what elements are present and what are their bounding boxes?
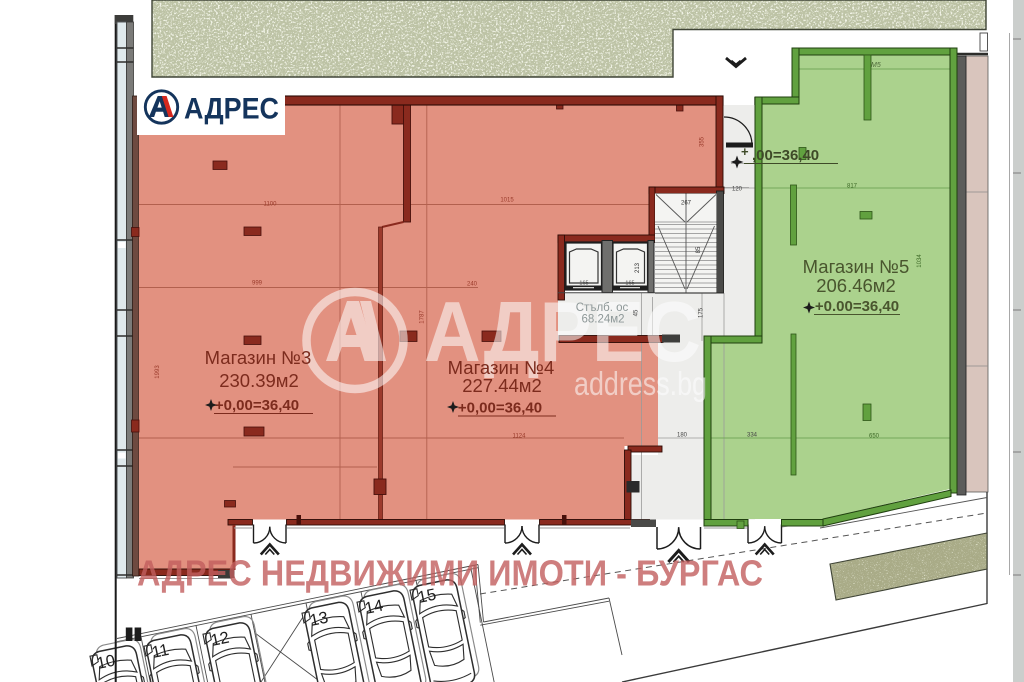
svg-text:355: 355 — [700, 136, 706, 147]
svg-text:206.46м2: 206.46м2 — [816, 275, 896, 296]
svg-text:267: 267 — [681, 201, 692, 207]
svg-text:68.24м2: 68.24м2 — [581, 314, 624, 326]
svg-text:1015: 1015 — [500, 198, 514, 204]
svg-text:334: 334 — [747, 433, 758, 439]
svg-text:85: 85 — [696, 246, 702, 253]
svg-text:999: 999 — [252, 281, 263, 287]
svg-text:13: 13 — [308, 609, 330, 630]
svg-text:175: 175 — [699, 307, 705, 318]
svg-text:1124: 1124 — [513, 434, 527, 440]
svg-text:+0,00=36,40: +0,00=36,40 — [458, 400, 542, 417]
svg-text:230.39м2: 230.39м2 — [219, 370, 299, 391]
svg-text:11: 11 — [150, 641, 170, 662]
svg-text:1993: 1993 — [155, 365, 161, 379]
svg-text:45: 45 — [634, 309, 640, 316]
svg-text:12: 12 — [209, 629, 231, 650]
svg-text:14: 14 — [363, 597, 385, 618]
svg-text:213: 213 — [635, 262, 641, 273]
svg-text:+: + — [741, 144, 749, 159]
svg-text:address.bg: address.bg — [574, 365, 707, 402]
svg-text:1034: 1034 — [917, 254, 923, 268]
svg-text:227.44м2: 227.44м2 — [462, 375, 542, 396]
svg-text:120: 120 — [732, 187, 743, 193]
svg-text:АДРЕС: АДРЕС — [184, 93, 279, 126]
svg-text:Стълб. ос: Стълб. ос — [576, 302, 629, 314]
svg-text:10: 10 — [95, 652, 117, 673]
svg-text:+0,00=36,40: +0,00=36,40 — [215, 397, 299, 414]
svg-text:650: 650 — [869, 434, 880, 440]
svg-text:240: 240 — [467, 282, 478, 288]
svg-text:АДРЕС НЕДВИЖИМИ ИМОТИ - БУРГАС: АДРЕС НЕДВИЖИМИ ИМОТИ - БУРГАС — [137, 553, 763, 594]
svg-text:180: 180 — [677, 433, 688, 439]
svg-text:M5: M5 — [871, 62, 881, 69]
svg-text:1100: 1100 — [264, 202, 278, 208]
svg-text:Магазин №3: Магазин №3 — [205, 347, 312, 368]
svg-text:817: 817 — [847, 184, 858, 190]
svg-text:,00=36,40: ,00=36,40 — [752, 147, 819, 164]
svg-text:1787: 1787 — [420, 310, 426, 324]
svg-text:+0.00=36,40: +0.00=36,40 — [815, 298, 899, 315]
svg-text:Магазин №5: Магазин №5 — [803, 256, 910, 277]
